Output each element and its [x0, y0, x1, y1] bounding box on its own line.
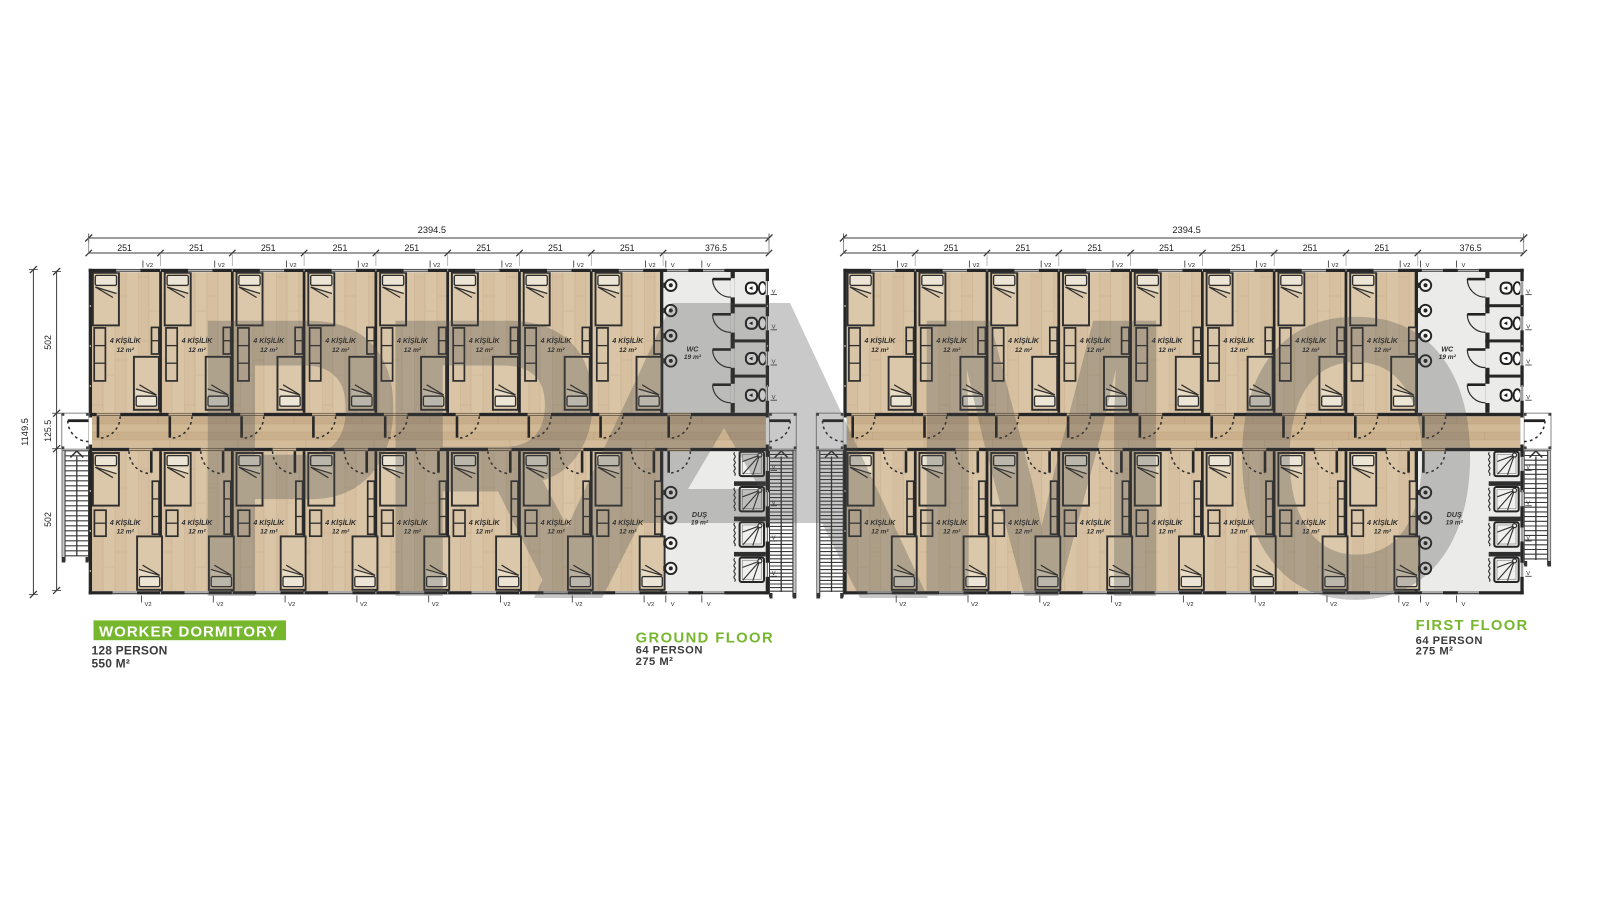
svg-text:FIRST FLOOR: FIRST FLOOR	[1416, 618, 1529, 634]
svg-text:64 PERSON: 64 PERSON	[636, 644, 703, 656]
svg-text:502: 502	[43, 335, 53, 350]
svg-text:502: 502	[43, 512, 53, 527]
svg-text:V: V	[707, 263, 711, 269]
svg-text:275 M²: 275 M²	[636, 656, 674, 668]
svg-text:V: V	[671, 602, 675, 608]
svg-text:251: 251	[117, 243, 132, 253]
svg-text:WORKER DORMITORY: WORKER DORMITORY	[99, 624, 278, 641]
svg-text:V: V	[772, 571, 776, 577]
svg-text:PR: PR	[186, 234, 611, 681]
svg-text:376.5: 376.5	[705, 243, 727, 253]
svg-text:128 PERSON: 128 PERSON	[92, 643, 168, 657]
svg-text:V: V	[671, 263, 675, 269]
svg-text:275 M²: 275 M²	[1416, 645, 1454, 657]
svg-text:1149.5: 1149.5	[20, 418, 30, 446]
svg-text:V: V	[772, 289, 776, 295]
svg-text:550 M²: 550 M²	[92, 656, 131, 670]
svg-text:251: 251	[620, 243, 635, 253]
svg-text:V: V	[707, 602, 711, 608]
svg-text:125.5: 125.5	[43, 420, 53, 442]
